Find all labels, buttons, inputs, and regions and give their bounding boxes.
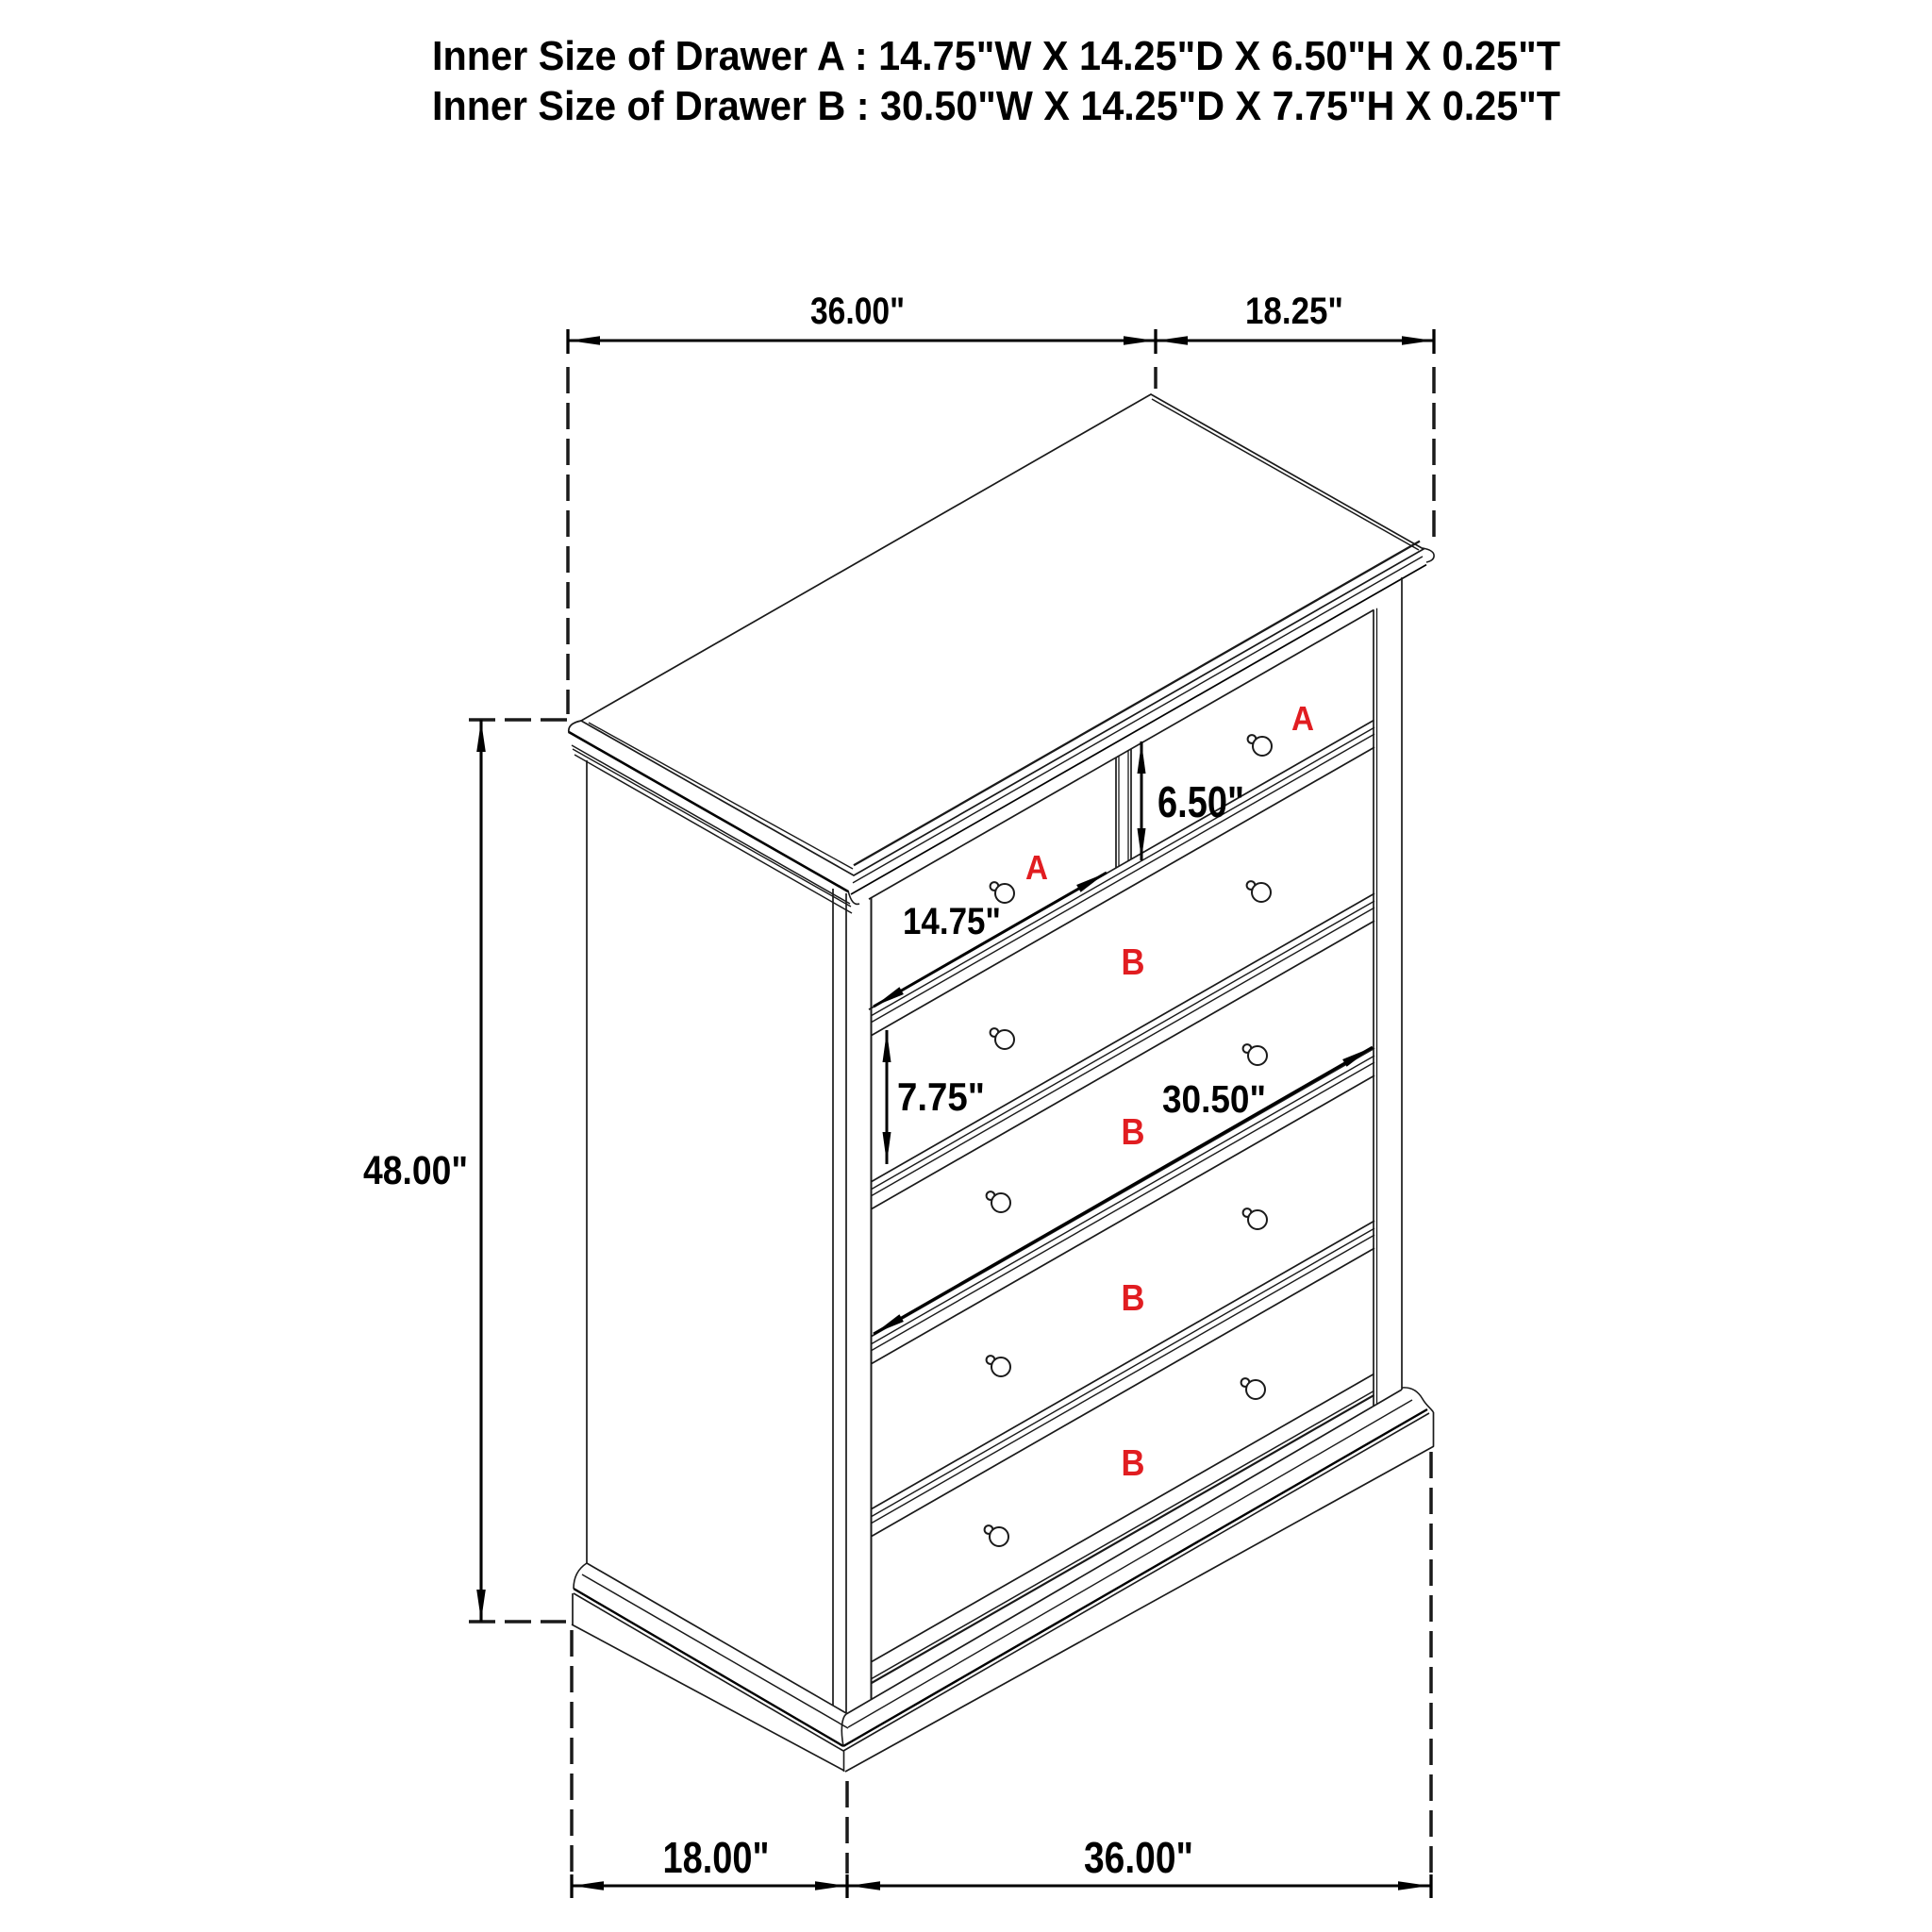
svg-text:B: B <box>1122 1112 1145 1153</box>
svg-text:Inner Size of Drawer A : 14.75: Inner Size of Drawer A : 14.75"W X 14.25… <box>432 33 1560 79</box>
svg-text:18.25": 18.25" <box>1245 291 1343 332</box>
svg-text:B: B <box>1122 1443 1145 1484</box>
svg-text:14.75": 14.75" <box>903 901 1001 942</box>
svg-text:7.75": 7.75" <box>897 1074 985 1119</box>
svg-text:48.00": 48.00" <box>363 1148 468 1193</box>
svg-text:A: A <box>1025 848 1048 887</box>
svg-text:36.00": 36.00" <box>1084 1833 1193 1882</box>
svg-text:B: B <box>1122 1278 1145 1319</box>
svg-text:6.50": 6.50" <box>1158 777 1244 826</box>
svg-text:B: B <box>1122 942 1145 983</box>
svg-text:A: A <box>1291 699 1314 738</box>
svg-text:36.00": 36.00" <box>810 291 905 332</box>
svg-text:Inner Size of Drawer B : 30.50: Inner Size of Drawer B : 30.50"W X 14.25… <box>432 83 1560 129</box>
svg-text:18.00": 18.00" <box>663 1833 770 1882</box>
svg-text:30.50": 30.50" <box>1162 1077 1266 1121</box>
